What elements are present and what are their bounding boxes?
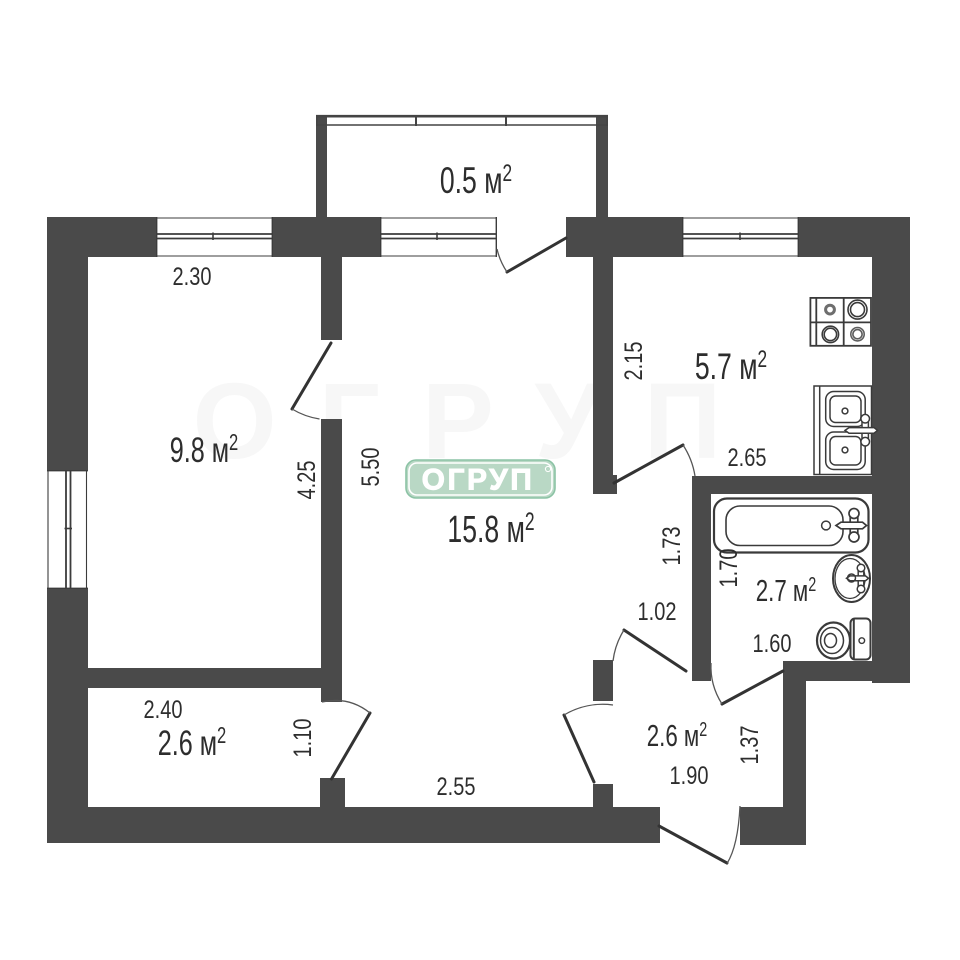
svg-text:1.10: 1.10	[289, 719, 317, 758]
svg-text:2.55: 2.55	[437, 773, 476, 801]
svg-text:1.02: 1.02	[638, 598, 677, 626]
svg-text:2.30: 2.30	[173, 263, 212, 291]
svg-text:0.5 м2: 0.5 м2	[440, 160, 512, 201]
svg-text:9.8 м2: 9.8 м2	[170, 430, 239, 470]
svg-text:5.50: 5.50	[357, 448, 385, 487]
svg-text:ОГРУП: ОГРУП	[422, 464, 535, 497]
svg-text:2.6 м2: 2.6 м2	[647, 718, 708, 753]
svg-text:2.15: 2.15	[620, 342, 648, 381]
svg-text:2.7 м2: 2.7 м2	[756, 573, 817, 608]
svg-text:1.37: 1.37	[736, 726, 764, 765]
svg-text:1.90: 1.90	[670, 762, 709, 790]
svg-text:2.6 м2: 2.6 м2	[158, 723, 227, 763]
svg-text:1.70: 1.70	[715, 549, 743, 588]
svg-text:2.65: 2.65	[728, 444, 767, 472]
svg-text:2.40: 2.40	[144, 696, 183, 724]
svg-text:15.8 м2: 15.8 м2	[447, 507, 534, 550]
svg-text:1.60: 1.60	[753, 630, 792, 658]
svg-text:4.25: 4.25	[293, 461, 321, 500]
svg-text:1.73: 1.73	[658, 527, 686, 566]
svg-text:5.7 м2: 5.7 м2	[695, 346, 767, 387]
